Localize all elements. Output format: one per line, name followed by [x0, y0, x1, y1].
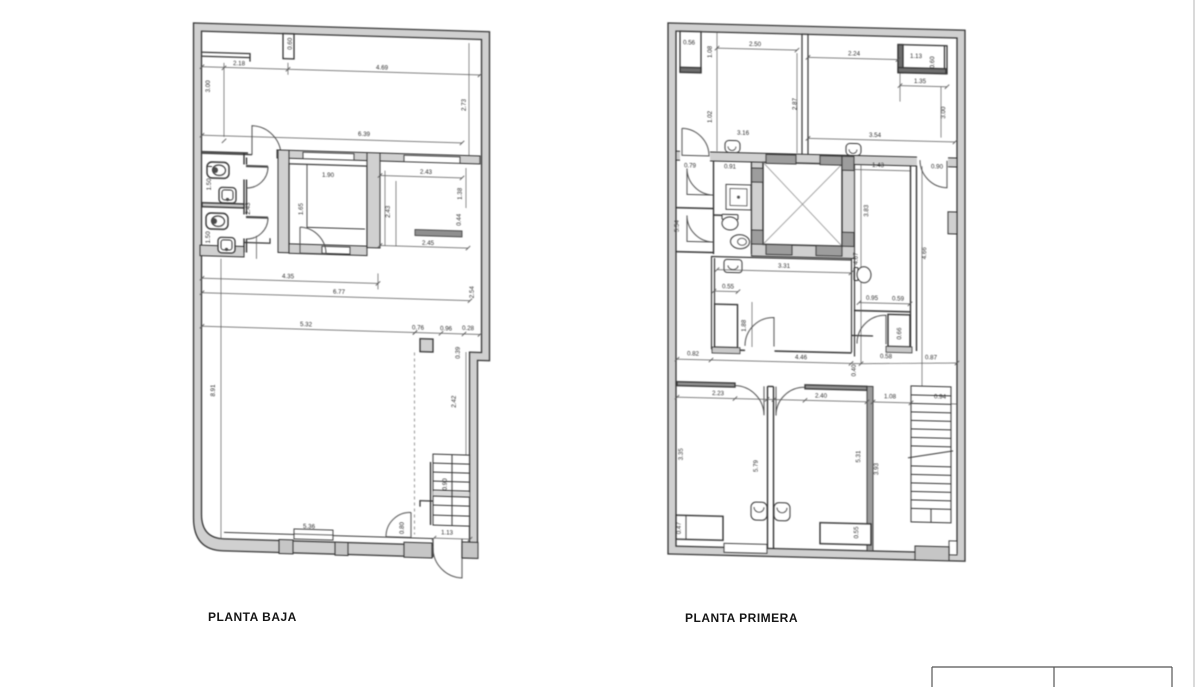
svg-text:0.90: 0.90 — [931, 163, 944, 170]
svg-text:0.60: 0.60 — [929, 56, 936, 69]
svg-text:1.65: 1.65 — [298, 202, 305, 215]
svg-text:0.44: 0.44 — [456, 213, 463, 226]
svg-text:0.66: 0.66 — [896, 327, 903, 340]
svg-text:1.08: 1.08 — [884, 393, 897, 400]
svg-text:1.88: 1.88 — [741, 319, 748, 332]
svg-text:3.54: 3.54 — [869, 132, 882, 139]
svg-text:8.91: 8.91 — [210, 384, 217, 397]
svg-text:0.90: 0.90 — [442, 478, 449, 491]
svg-text:0.39: 0.39 — [455, 346, 462, 359]
svg-text:2.40: 2.40 — [815, 393, 828, 400]
svg-text:4.69: 4.69 — [376, 64, 389, 71]
svg-text:0.59: 0.59 — [892, 295, 905, 302]
svg-text:0.80: 0.80 — [399, 521, 406, 534]
svg-text:2.43: 2.43 — [385, 205, 392, 218]
svg-text:0.95: 0.95 — [866, 295, 879, 302]
svg-text:1.02: 1.02 — [707, 110, 714, 123]
svg-text:4.66: 4.66 — [921, 247, 928, 260]
svg-text:0.79: 0.79 — [684, 162, 697, 169]
svg-text:0.96: 0.96 — [440, 325, 453, 332]
svg-text:2.43: 2.43 — [245, 202, 252, 215]
svg-text:1.35: 1.35 — [914, 78, 927, 85]
svg-text:0.47: 0.47 — [676, 522, 683, 535]
svg-text:2.23: 2.23 — [712, 390, 725, 397]
svg-text:2.87: 2.87 — [792, 97, 799, 110]
svg-text:1.43: 1.43 — [872, 162, 885, 169]
svg-text:2.24: 2.24 — [848, 50, 861, 57]
svg-text:2.73: 2.73 — [461, 98, 468, 111]
svg-text:0.82: 0.82 — [687, 350, 700, 357]
svg-text:3.83: 3.83 — [863, 204, 870, 217]
svg-text:1.38: 1.38 — [457, 187, 464, 200]
svg-text:0.76: 0.76 — [412, 324, 425, 331]
svg-text:0.40: 0.40 — [851, 364, 858, 377]
svg-text:3.00: 3.00 — [940, 106, 947, 119]
svg-text:0.94: 0.94 — [934, 393, 947, 400]
svg-text:6.77: 6.77 — [333, 289, 346, 296]
svg-text:4.35: 4.35 — [282, 273, 295, 280]
svg-text:0.60: 0.60 — [287, 37, 294, 50]
svg-text:5.79: 5.79 — [753, 459, 760, 472]
svg-text:1.90: 1.90 — [322, 172, 335, 179]
svg-text:5.31: 5.31 — [855, 450, 862, 463]
svg-text:1.50: 1.50 — [205, 231, 212, 244]
svg-text:1.50: 1.50 — [206, 178, 213, 191]
svg-text:1.08: 1.08 — [707, 45, 714, 58]
svg-text:3.16: 3.16 — [737, 130, 750, 137]
svg-text:6.39: 6.39 — [358, 131, 371, 138]
svg-text:0.91: 0.91 — [724, 163, 737, 170]
svg-text:PLANTA BAJA: PLANTA BAJA — [208, 610, 297, 624]
svg-text:3.00: 3.00 — [205, 80, 212, 93]
svg-text:3.35: 3.35 — [678, 448, 685, 461]
svg-text:1.13: 1.13 — [441, 529, 454, 536]
svg-text:0.55: 0.55 — [722, 283, 735, 290]
svg-text:0.87: 0.87 — [925, 354, 938, 361]
svg-text:2.42: 2.42 — [451, 395, 458, 408]
svg-text:PLANTA PRIMERA: PLANTA PRIMERA — [685, 611, 798, 625]
svg-text:0.58: 0.58 — [880, 353, 893, 360]
svg-text:2.54: 2.54 — [469, 286, 476, 299]
svg-text:0.56: 0.56 — [683, 39, 696, 46]
svg-text:2.43: 2.43 — [420, 169, 433, 176]
svg-text:5.54: 5.54 — [674, 219, 681, 232]
svg-text:1.13: 1.13 — [910, 53, 923, 60]
svg-text:3.93: 3.93 — [873, 462, 880, 475]
svg-text:5.32: 5.32 — [300, 321, 313, 328]
svg-text:0.28: 0.28 — [462, 325, 475, 332]
svg-text:5.36: 5.36 — [303, 523, 316, 530]
svg-text:2.50: 2.50 — [749, 41, 762, 48]
svg-text:3.31: 3.31 — [778, 263, 791, 270]
svg-text:0.55: 0.55 — [853, 526, 860, 539]
svg-text:2.18: 2.18 — [233, 60, 246, 67]
svg-text:2.45: 2.45 — [422, 240, 435, 247]
svg-text:4.46: 4.46 — [795, 354, 808, 361]
